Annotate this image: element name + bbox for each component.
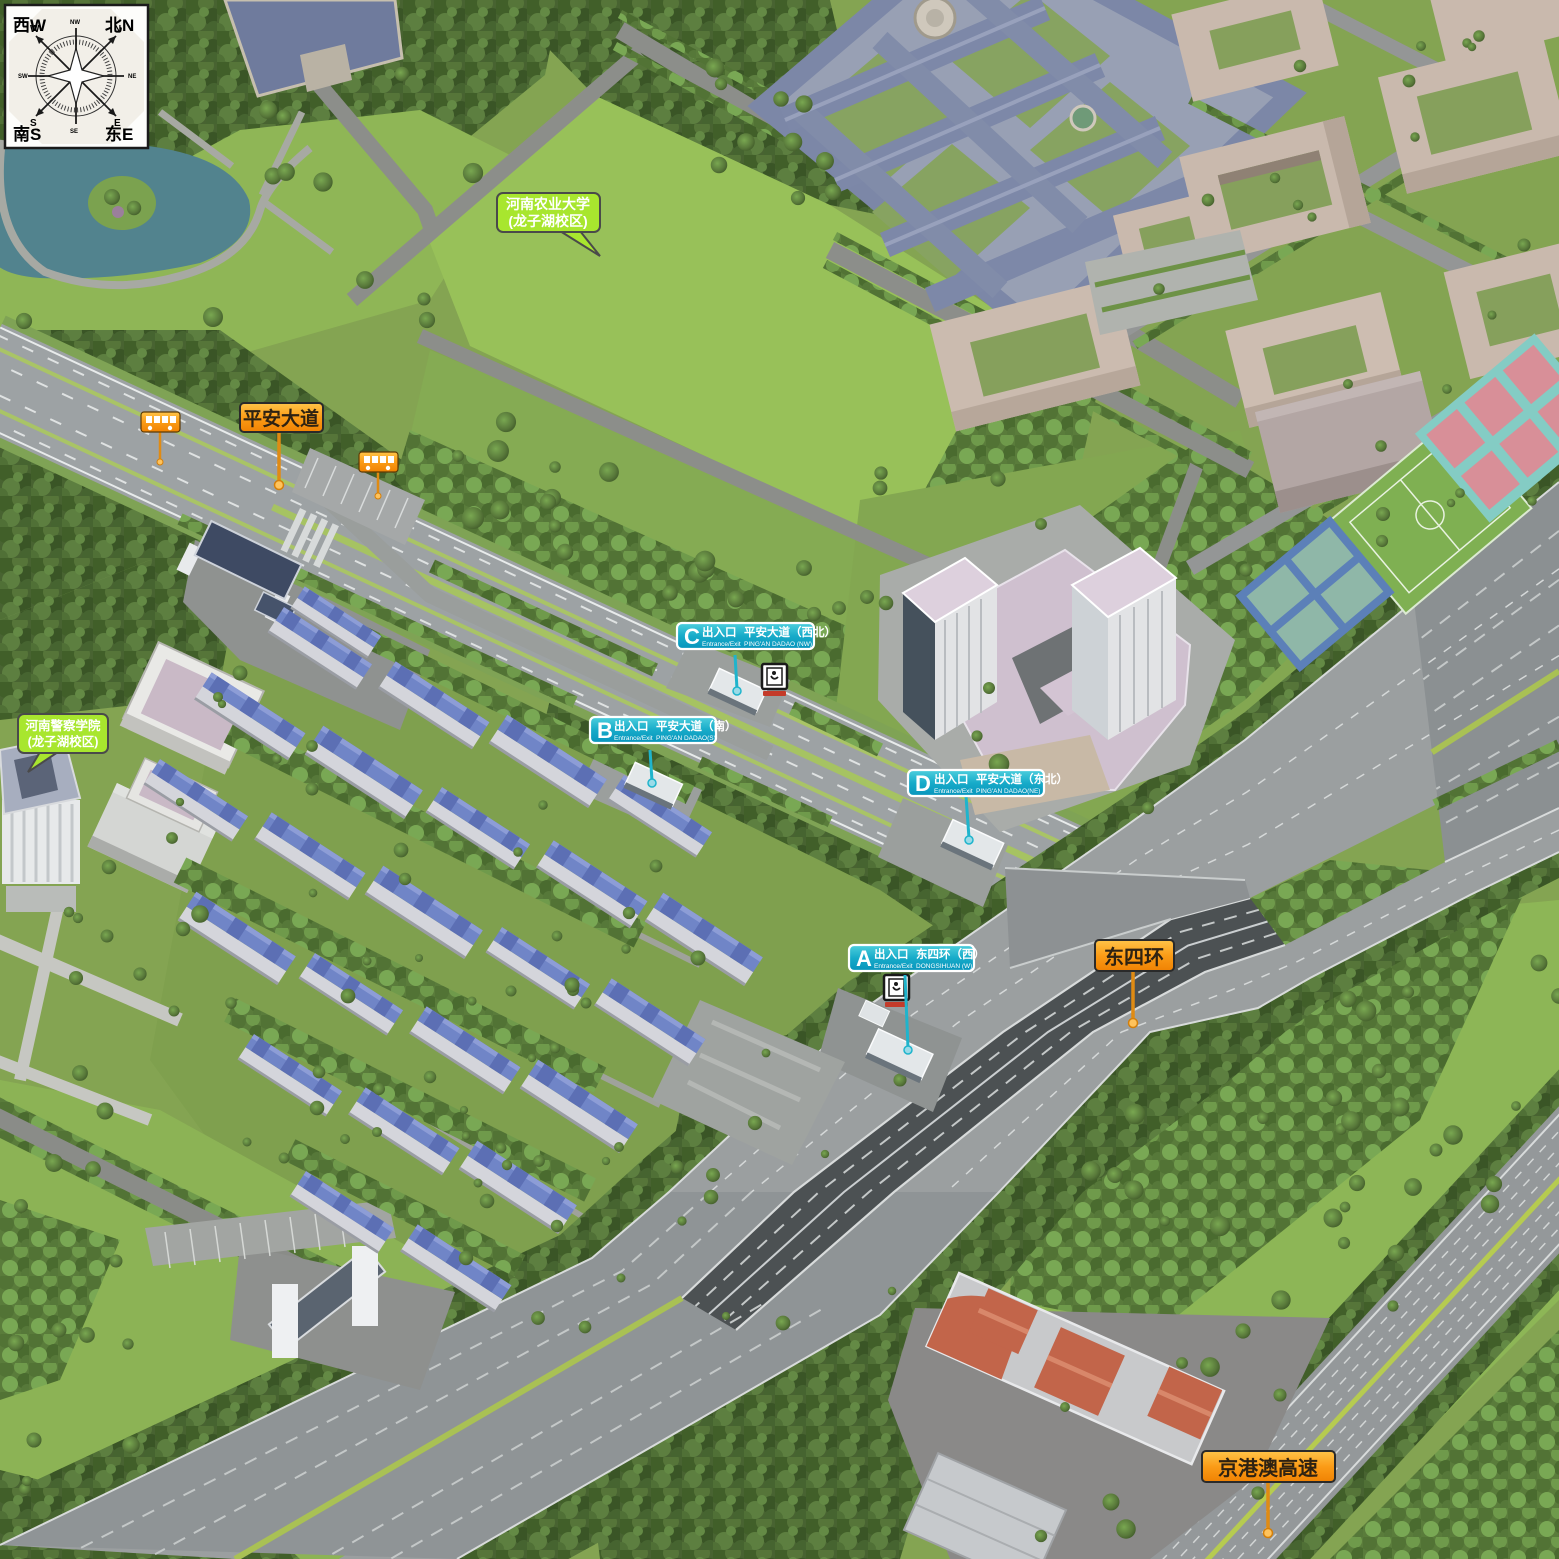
svg-text:河南警察学院: 河南警察学院 <box>25 718 101 733</box>
svg-text:S: S <box>30 118 37 129</box>
svg-text:B: B <box>597 718 613 743</box>
svg-text:Entrance/Exit: Entrance/Exit <box>614 735 653 742</box>
svg-text:平安大道（东北）: 平安大道（东北） <box>976 772 1068 786</box>
svg-text:DONGSIHUAN (W): DONGSIHUAN (W) <box>916 963 972 970</box>
svg-text:PING'AN DADAO (NW): PING'AN DADAO (NW) <box>744 641 812 648</box>
svg-text:NW: NW <box>70 20 80 26</box>
svg-text:东四环（西）: 东四环（西） <box>916 947 985 961</box>
svg-text:Entrance/Exit: Entrance/Exit <box>702 641 741 648</box>
svg-text:Entrance/Exit: Entrance/Exit <box>874 963 913 970</box>
svg-text:出入口: 出入口 <box>874 947 909 961</box>
svg-text:平安大道（西北）: 平安大道（西北） <box>744 625 836 639</box>
svg-text:(龙子湖校区): (龙子湖校区) <box>508 213 587 229</box>
svg-text:东四环: 东四环 <box>1104 945 1164 969</box>
svg-text:SW: SW <box>18 74 28 80</box>
svg-text:A: A <box>856 946 872 971</box>
svg-text:E: E <box>114 118 121 129</box>
svg-text:京港澳高速: 京港澳高速 <box>1218 1456 1318 1480</box>
svg-text:(龙子湖校区): (龙子湖校区) <box>28 734 99 749</box>
svg-text:N: N <box>114 24 121 35</box>
svg-text:NE: NE <box>128 74 136 80</box>
svg-text:出入口: 出入口 <box>934 772 969 786</box>
svg-text:W: W <box>30 24 40 35</box>
svg-text:D: D <box>915 771 931 796</box>
svg-text:出入口: 出入口 <box>702 625 737 639</box>
svg-text:河南农业大学: 河南农业大学 <box>506 196 590 212</box>
svg-text:C: C <box>684 624 700 649</box>
svg-text:平安大道（南）: 平安大道（南） <box>656 719 737 733</box>
svg-text:PING'AN DADAO(NE): PING'AN DADAO(NE) <box>976 788 1040 795</box>
svg-text:南S: 南S <box>13 124 41 144</box>
svg-text:平安大道: 平安大道 <box>243 407 319 430</box>
svg-text:Entrance/Exit: Entrance/Exit <box>934 788 973 795</box>
svg-text:PING'AN DADAO(S): PING'AN DADAO(S) <box>656 735 716 742</box>
svg-text:SE: SE <box>70 129 78 135</box>
svg-text:出入口: 出入口 <box>614 719 649 733</box>
